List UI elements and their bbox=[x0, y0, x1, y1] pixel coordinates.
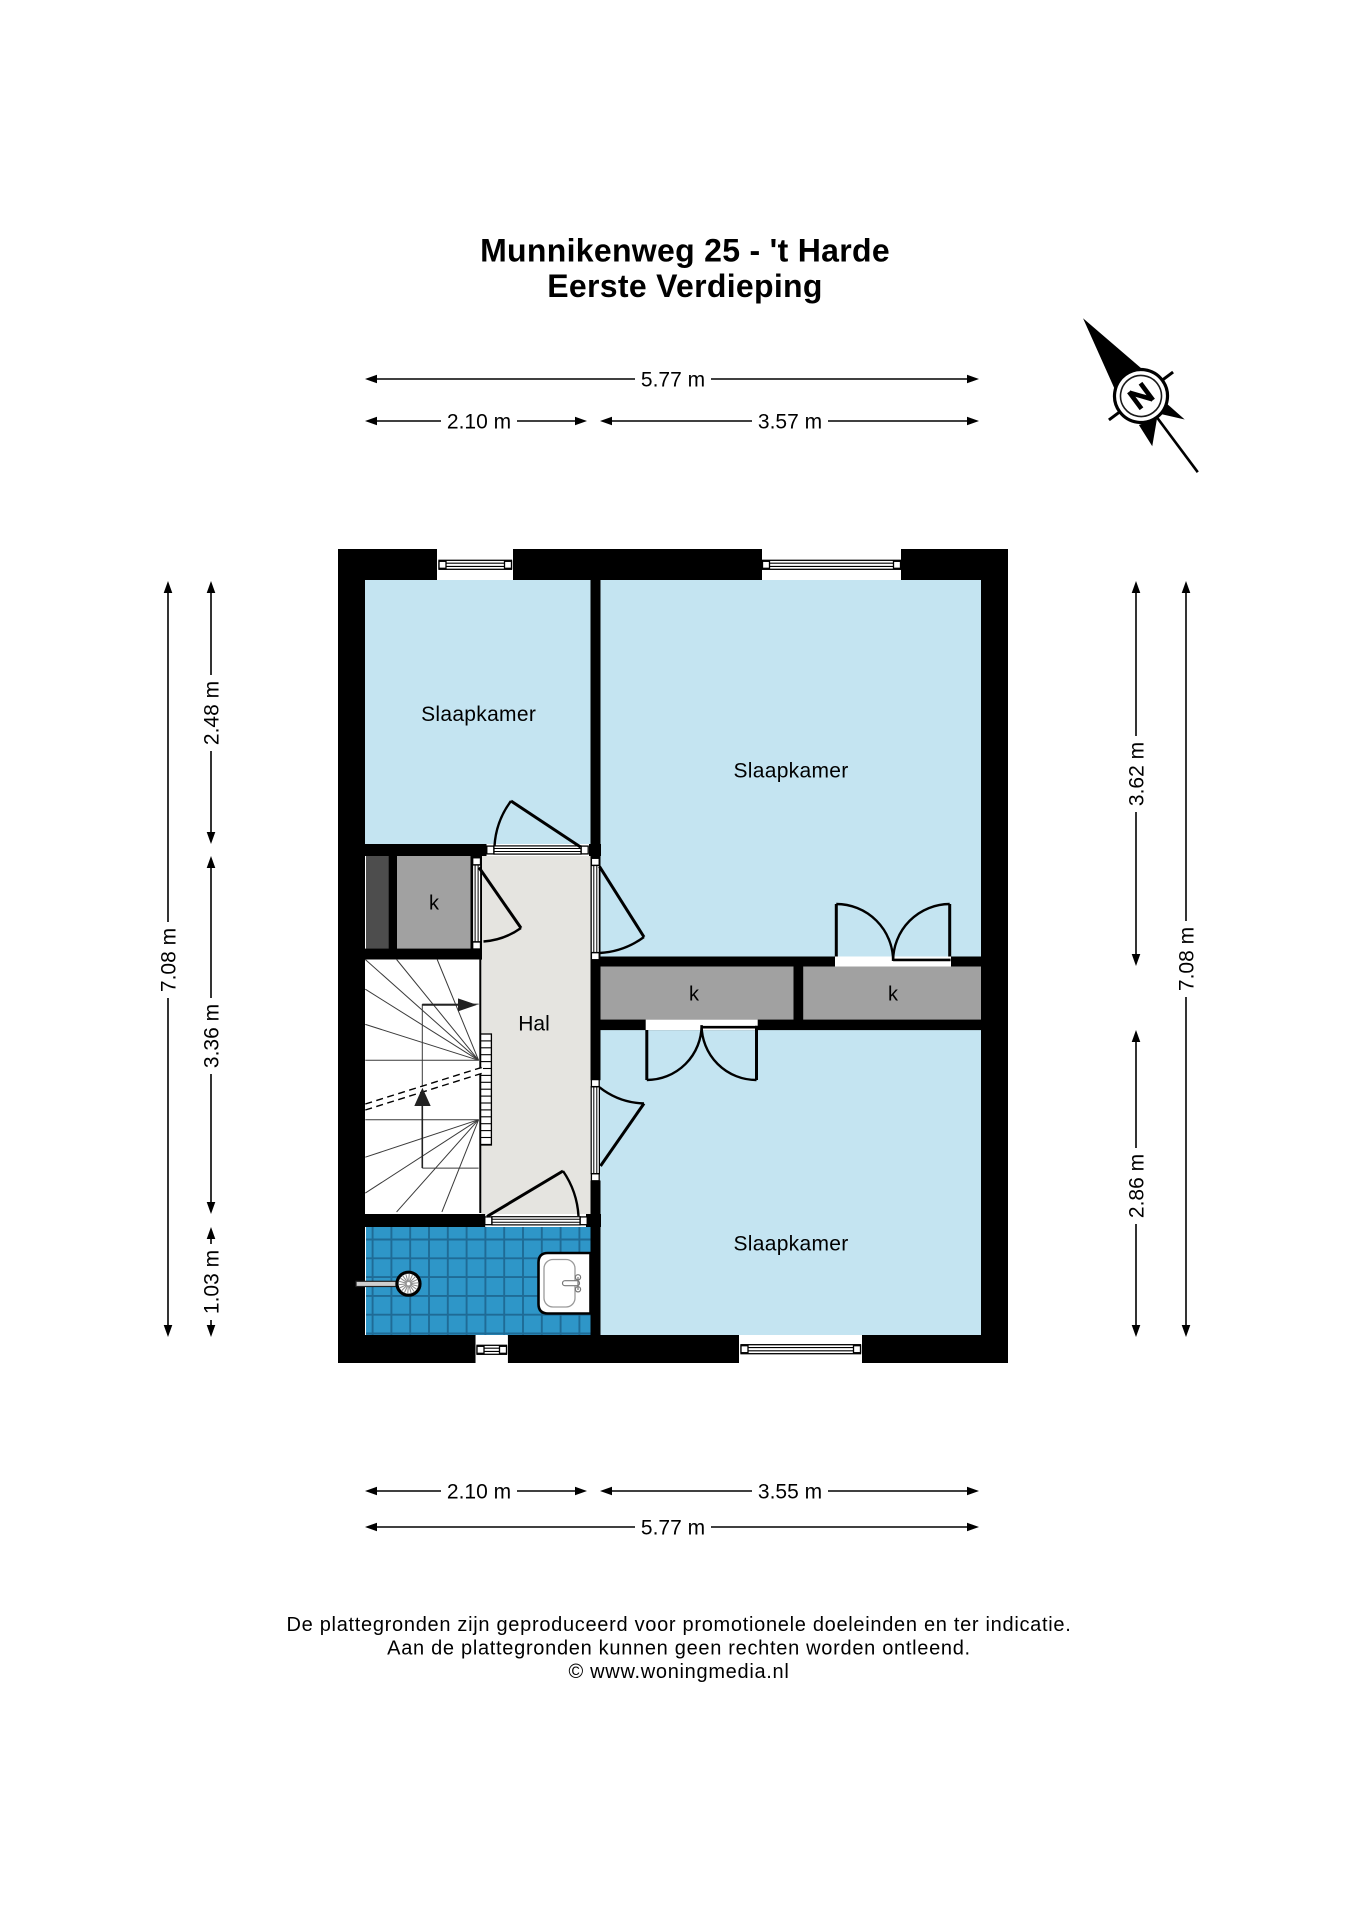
svg-text:7.08 m: 7.08 m bbox=[158, 928, 181, 992]
svg-text:3.62 m: 3.62 m bbox=[1126, 742, 1149, 806]
svg-text:2.10 m: 2.10 m bbox=[447, 1481, 511, 1504]
svg-text:k: k bbox=[429, 893, 440, 915]
svg-text:k: k bbox=[888, 984, 899, 1006]
svg-text:Slaapkamer: Slaapkamer bbox=[733, 1233, 848, 1256]
svg-text:5.77 m: 5.77 m bbox=[641, 369, 705, 392]
svg-text:3.36 m: 3.36 m bbox=[201, 1004, 224, 1068]
svg-text:2.10 m: 2.10 m bbox=[447, 411, 511, 434]
svg-text:Munnikenweg 25 - 't Harde: Munnikenweg 25 - 't Harde bbox=[480, 233, 890, 269]
svg-text:2.86 m: 2.86 m bbox=[1126, 1154, 1149, 1218]
svg-text:2.48 m: 2.48 m bbox=[201, 681, 224, 745]
svg-text:Eerste Verdieping: Eerste Verdieping bbox=[547, 268, 822, 304]
svg-text:Aan de plattegronden kunnen ge: Aan de plattegronden kunnen geen rechten… bbox=[387, 1638, 971, 1660]
svg-text:© www.woningmedia.nl: © www.woningmedia.nl bbox=[568, 1661, 789, 1683]
svg-text:3.57 m: 3.57 m bbox=[758, 411, 822, 434]
svg-text:k: k bbox=[689, 984, 700, 1006]
svg-text:7.08 m: 7.08 m bbox=[1176, 927, 1199, 991]
svg-text:3.55 m: 3.55 m bbox=[758, 1481, 822, 1504]
svg-text:Slaapkamer: Slaapkamer bbox=[421, 703, 536, 726]
svg-text:De plattegronden zijn geproduc: De plattegronden zijn geproduceerd voor … bbox=[287, 1614, 1072, 1636]
svg-text:1.03 m: 1.03 m bbox=[201, 1250, 224, 1314]
svg-text:Slaapkamer: Slaapkamer bbox=[733, 760, 848, 783]
svg-text:Hal: Hal bbox=[518, 1013, 550, 1036]
svg-text:5.77 m: 5.77 m bbox=[641, 1517, 705, 1540]
